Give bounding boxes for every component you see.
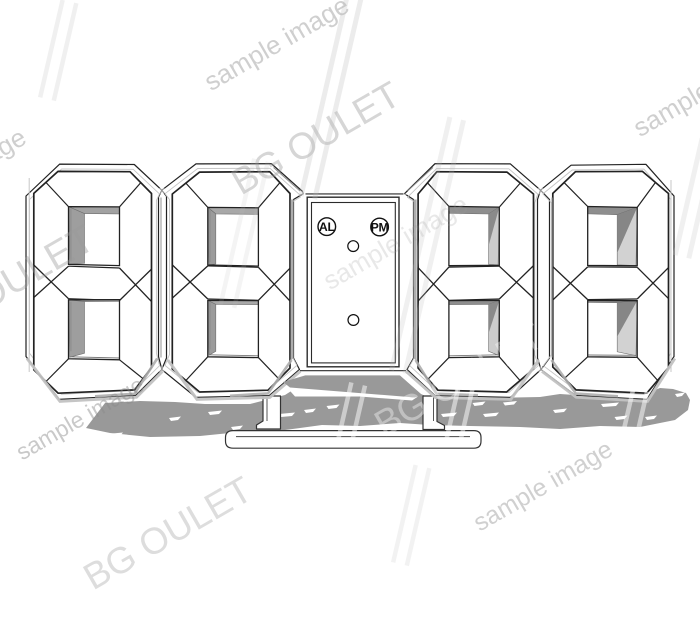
svg-text:AL: AL xyxy=(319,220,336,234)
